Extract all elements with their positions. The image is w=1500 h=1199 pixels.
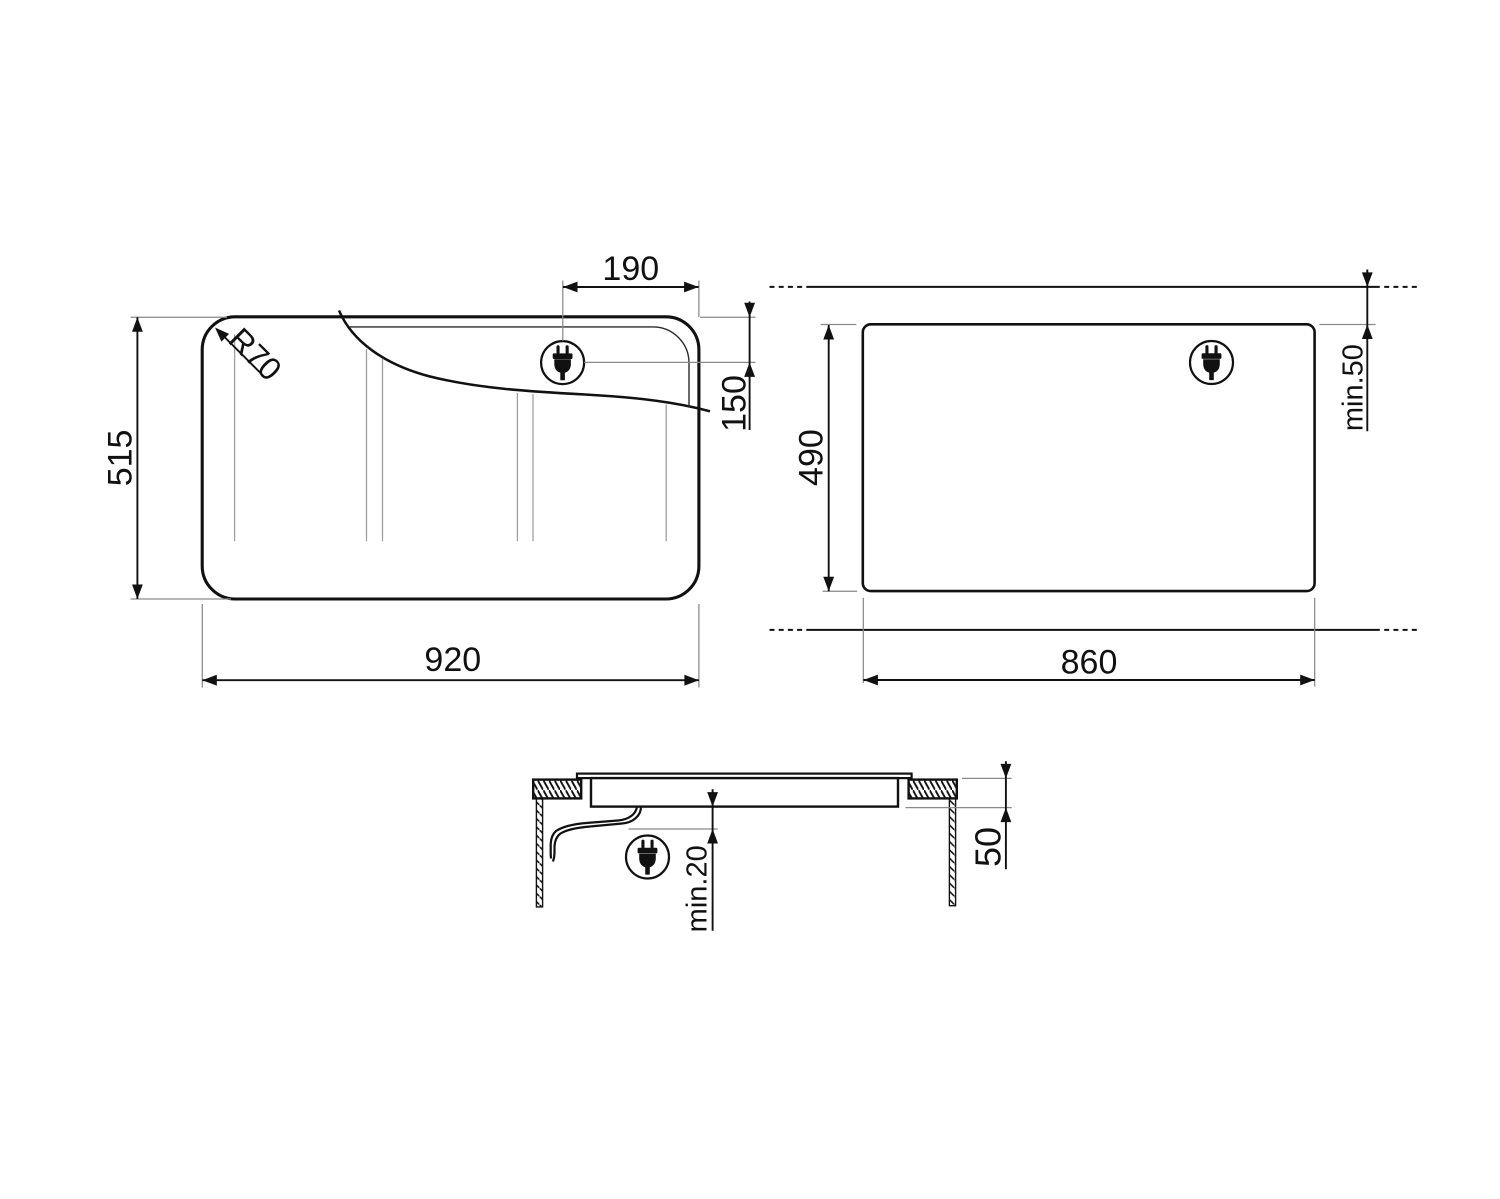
svg-text:min.20: min.20 xyxy=(682,845,714,932)
svg-text:190: 190 xyxy=(602,250,659,288)
svg-text:50: 50 xyxy=(968,827,1009,867)
svg-text:min.50: min.50 xyxy=(1338,344,1370,431)
svg-text:920: 920 xyxy=(424,641,481,679)
svg-text:150: 150 xyxy=(716,375,754,432)
svg-text:R70: R70 xyxy=(222,321,289,388)
svg-text:490: 490 xyxy=(793,429,831,486)
svg-text:515: 515 xyxy=(102,430,140,487)
svg-text:860: 860 xyxy=(1061,644,1118,682)
